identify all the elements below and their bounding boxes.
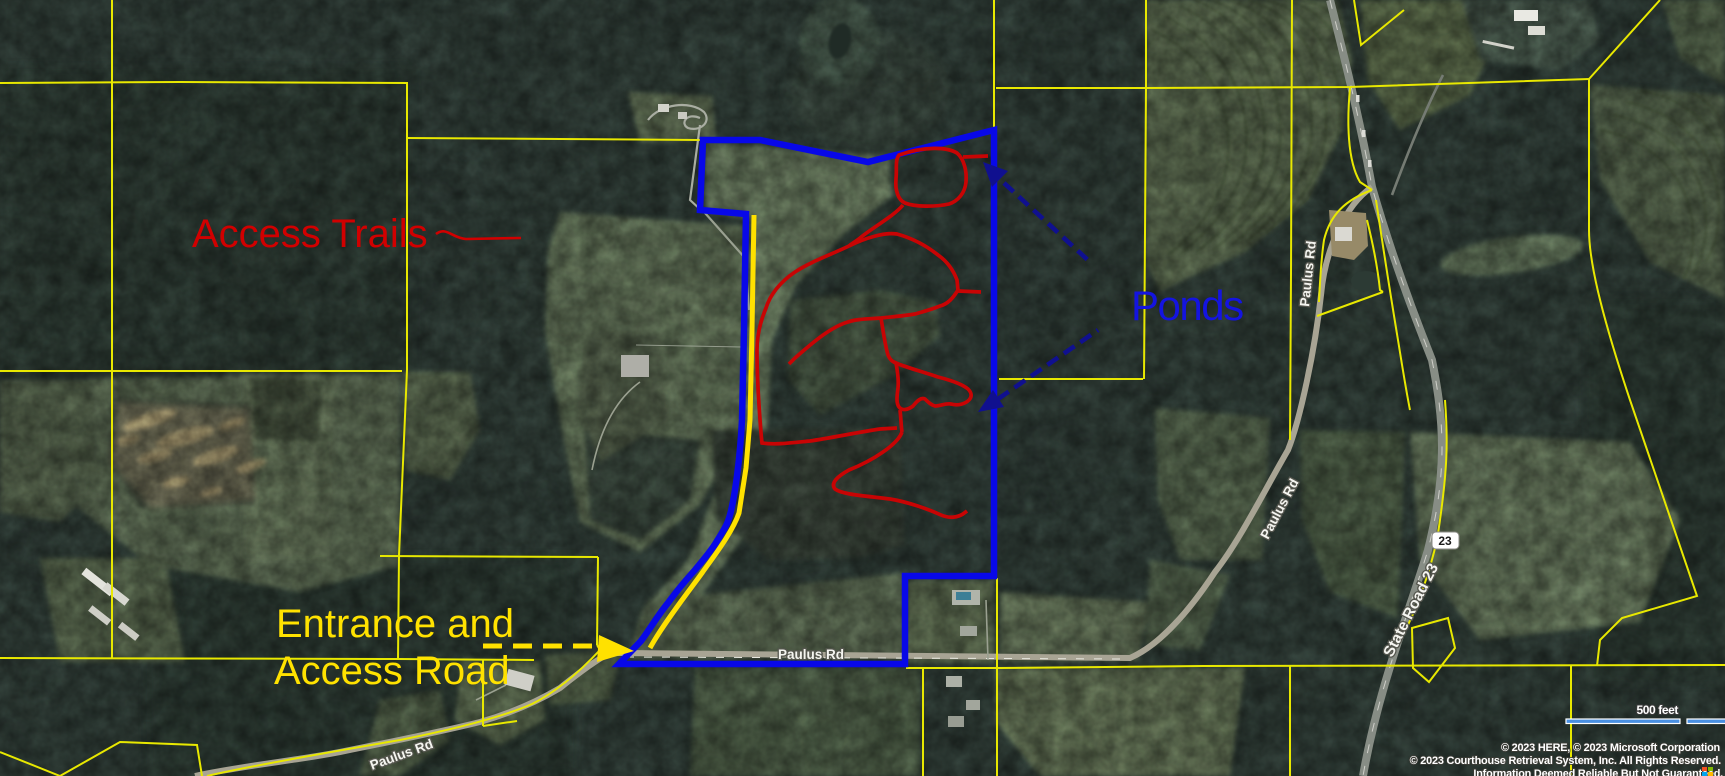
svg-text:Entrance and: Entrance and [276, 602, 514, 646]
svg-text:500 feet: 500 feet [1637, 703, 1679, 717]
svg-text:Paulus Rd: Paulus Rd [778, 647, 844, 662]
svg-text:Information Deemed Reliable Bu: Information Deemed Reliable But Not Guar… [1473, 768, 1723, 776]
svg-text:© 2023 Courthouse Retrieval Sy: © 2023 Courthouse Retrieval System, Inc.… [1410, 755, 1722, 767]
svg-text:Access Road: Access Road [274, 649, 510, 693]
svg-text:Ponds: Ponds [1131, 282, 1243, 329]
svg-text:© 2023 HERE, © 2023 Microsoft: © 2023 HERE, © 2023 Microsoft Corporatio… [1501, 742, 1720, 754]
svg-text:23: 23 [1438, 534, 1452, 548]
svg-text:Access Trails: Access Trails [192, 212, 428, 256]
